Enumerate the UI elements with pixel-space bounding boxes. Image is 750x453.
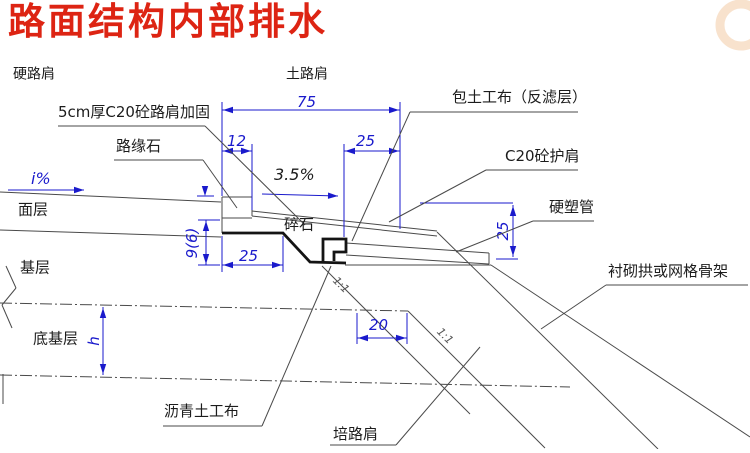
- dim-arrowhead: [358, 335, 368, 341]
- label-gravel: 碎石: [284, 216, 314, 234]
- construction-line: [408, 311, 545, 448]
- dim-arrowhead: [203, 221, 209, 231]
- construction-line: [6, 266, 16, 288]
- label-lining-arch-or-grid-skeleton: 衬砌拱或网格骨架: [608, 262, 728, 280]
- dim-arrowhead: [100, 364, 106, 374]
- construction-line: [346, 243, 489, 253]
- label-c20-concrete-shoulder: C20砼护肩: [505, 147, 580, 165]
- dimension-value: 25: [356, 132, 375, 150]
- label-geotextile-wrap: 包土工布（反滤层）: [452, 88, 587, 106]
- drawing-canvas: 75122525209(6)25hi%3.5%5cm厚C20砼路肩加固路缘石包土…: [0, 0, 750, 449]
- label-rigid-plastic-pipe: 硬塑管: [549, 198, 594, 216]
- dim-arrowhead: [389, 107, 399, 113]
- dim-arrowhead: [272, 262, 282, 268]
- dim-arrowhead: [510, 206, 516, 216]
- construction-line: [491, 265, 750, 437]
- layer-boundary-line: [0, 303, 408, 311]
- dim-arrowhead: [345, 148, 355, 154]
- cross-section-drawing: 75122525209(6)25hi%3.5%5cm厚C20砼路肩加固路缘石包土…: [0, 0, 750, 449]
- construction-line: [2, 288, 16, 305]
- dimension-value: 20: [369, 316, 388, 334]
- cross-slope-i: i%: [31, 169, 51, 188]
- label-curb-leader: [203, 160, 237, 208]
- dimension-value: 25: [239, 247, 258, 265]
- label-lining-arch-or-grid-skeleton-leader: [541, 285, 606, 329]
- label-5cm-c20-shoulder-reinforcement: 5cm厚C20砼路肩加固: [58, 103, 210, 121]
- dim-arrowhead: [100, 308, 106, 318]
- construction-line: [2, 305, 12, 328]
- shoulder-slope-35: 3.5%: [274, 165, 315, 184]
- slope-ratio-1-1-b: 1:1: [434, 325, 456, 347]
- geotextile-thick-line: [323, 239, 346, 262]
- label-c20-concrete-shoulder-leader: [389, 170, 486, 222]
- dimension-value: 12: [227, 132, 246, 150]
- label-fill-shoulder: 培路肩: [333, 425, 378, 443]
- dim-arrowhead: [396, 335, 406, 341]
- label-asphalt-geotextile-leader: [262, 266, 331, 426]
- layer-boundary-line: [0, 375, 570, 387]
- dim-arrowhead: [510, 246, 516, 256]
- label-hard-shoulder: 硬路肩: [13, 67, 55, 83]
- page-title: 路面结构内部排水: [8, 0, 328, 44]
- cross-slope-i-arrowhead: [74, 187, 84, 193]
- dim-arrowhead: [223, 262, 233, 268]
- label-surface-course: 面层: [18, 201, 48, 219]
- label-base-course: 基层: [20, 259, 50, 277]
- shoulder-slope-35-arrowhead: [328, 193, 338, 200]
- watermark-logo: [720, 4, 750, 46]
- dim-arrowhead: [223, 107, 233, 113]
- dimension-value: 75: [297, 93, 316, 111]
- dimension-value: 9(6): [183, 228, 201, 259]
- dimension-value: h: [85, 336, 103, 346]
- dim-arrowhead: [203, 254, 209, 264]
- label-curb: 路缘石: [116, 137, 161, 155]
- label-fill-shoulder-leader: [396, 347, 480, 445]
- label-subbase-course: 底基层: [33, 330, 78, 348]
- label-asphalt-geotextile: 沥青土工布: [164, 402, 239, 420]
- surface-level-arrow: [202, 186, 208, 196]
- label-soil-shoulder: 土路肩: [286, 67, 328, 83]
